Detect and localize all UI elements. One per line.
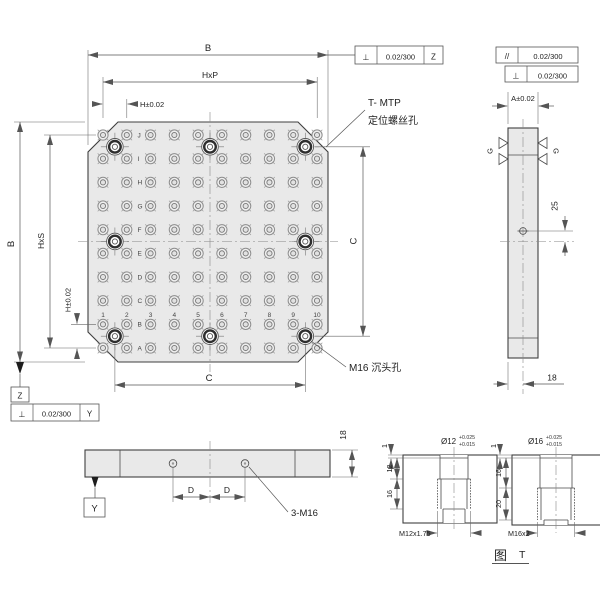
dim-hxs-label: HxS	[36, 233, 46, 249]
row-label: F	[138, 227, 142, 234]
threaded-hole	[240, 130, 251, 141]
dim-18-side-label: 18	[547, 373, 557, 383]
threaded-hole	[98, 224, 109, 235]
dim-B-left: B Z	[6, 122, 85, 402]
threaded-hole	[169, 343, 180, 354]
finish-g-right-label: G	[552, 148, 561, 154]
front-view: D D 3-M16 18 Y	[84, 430, 358, 519]
threaded-hole	[217, 177, 228, 188]
threaded-hole	[288, 272, 299, 283]
fcf-perp-tolerance: 0.02/300	[538, 72, 567, 81]
note-tmtp-line1: T- MTP	[368, 98, 401, 109]
m12-tol-upper: +0.025	[459, 435, 475, 441]
threaded-hole	[121, 248, 132, 259]
threaded-hole	[288, 153, 299, 164]
datum-z-label: Z	[18, 392, 23, 401]
dim-h-left-label: H±0.02	[64, 288, 73, 312]
threaded-hole	[312, 272, 323, 283]
threaded-hole	[121, 177, 132, 188]
fcf-bottom-left: ⊥ 0.02/300 Y	[11, 404, 99, 421]
threaded-hole	[312, 295, 323, 306]
threaded-hole	[264, 130, 275, 141]
row-label: I	[138, 156, 140, 163]
threaded-hole	[312, 130, 323, 141]
row-label: C	[138, 298, 143, 305]
threaded-hole	[145, 343, 156, 354]
dim-b-left-label: B	[6, 241, 17, 247]
threaded-hole	[121, 130, 132, 141]
threaded-hole	[217, 319, 228, 330]
m16-thread-label: M16x2	[508, 529, 530, 538]
row-label: D	[138, 274, 143, 281]
dim-25-label: 25	[550, 201, 560, 211]
datum-z-triangle	[16, 362, 24, 374]
threaded-hole	[264, 319, 275, 330]
threaded-hole	[288, 177, 299, 188]
m16-tol-lower: +0.015	[546, 442, 562, 448]
caption-ref-label: T	[519, 549, 526, 561]
threaded-hole	[288, 295, 299, 306]
threaded-hole	[169, 295, 180, 306]
fcf-bottom-tolerance: 0.02/300	[42, 410, 71, 419]
threaded-hole	[145, 319, 156, 330]
note-m16: M16 沉头孔	[311, 341, 401, 374]
col-label: 1	[101, 312, 105, 319]
threaded-hole	[193, 295, 204, 306]
threaded-hole	[98, 177, 109, 188]
threaded-hole	[169, 177, 180, 188]
dim-c-right-label: C	[349, 237, 360, 244]
threaded-hole	[240, 343, 251, 354]
m12-tol-lower: +0.015	[459, 442, 475, 448]
threaded-hole	[145, 272, 156, 283]
row-label: E	[138, 251, 143, 258]
m16-dim-bore: 16	[494, 469, 503, 477]
dim-d-left-label: D	[188, 485, 194, 495]
col-label: 6	[220, 312, 224, 319]
threaded-hole	[145, 201, 156, 212]
threaded-hole	[264, 272, 275, 283]
threaded-hole	[145, 248, 156, 259]
threaded-hole	[288, 201, 299, 212]
m16-dim-lip: 1	[489, 444, 498, 448]
m12-dim-bore: 12	[385, 465, 394, 473]
col-label: 10	[313, 312, 321, 319]
row-label: A	[138, 345, 143, 352]
note-m16-label: M16 沉头孔	[349, 361, 401, 374]
threaded-hole	[169, 130, 180, 141]
col-label: 8	[268, 312, 272, 319]
threaded-hole	[240, 272, 251, 283]
threaded-hole	[288, 343, 299, 354]
threaded-hole	[145, 224, 156, 235]
m12-dia-label: Ø12	[441, 437, 457, 446]
threaded-hole	[193, 224, 204, 235]
fcf-parallel-tolerance: 0.02/300	[533, 52, 562, 61]
dim-h-top-label: H±0.02	[140, 100, 164, 109]
threaded-hole	[288, 319, 299, 330]
threaded-hole	[193, 153, 204, 164]
threaded-hole	[98, 153, 109, 164]
threaded-hole	[312, 248, 323, 259]
threaded-hole	[98, 295, 109, 306]
threaded-hole	[240, 153, 251, 164]
dim-m12-dia: Ø12 +0.025 +0.015	[441, 435, 475, 448]
threaded-hole	[288, 248, 299, 259]
front-bar	[85, 450, 330, 477]
m16-tol-upper: +0.025	[546, 435, 562, 441]
threaded-hole	[98, 319, 109, 330]
threaded-hole	[98, 130, 109, 141]
note-tmtp: T- MTP 定位螺丝孔	[326, 98, 418, 147]
row-label: G	[138, 203, 143, 210]
col-label: 3	[149, 312, 153, 319]
fcf-top-datum: Z	[431, 53, 436, 62]
threaded-hole	[169, 153, 180, 164]
threaded-hole	[217, 224, 228, 235]
threaded-hole	[217, 153, 228, 164]
col-label: 4	[173, 312, 177, 319]
threaded-hole	[264, 224, 275, 235]
datum-y-label: Y	[91, 504, 98, 515]
threaded-hole	[264, 248, 275, 259]
threaded-hole	[217, 343, 228, 354]
perpendicularity-icon: ⊥	[19, 410, 26, 419]
m16-dim-thread: 20	[494, 500, 503, 508]
dim-a-label: A±0.02	[511, 94, 535, 103]
threaded-hole	[217, 130, 228, 141]
threaded-hole	[240, 201, 251, 212]
m12-dim-lip: 1	[380, 444, 389, 448]
threaded-hole	[98, 343, 109, 354]
finish-g-left-label: G	[486, 148, 495, 154]
threaded-hole	[240, 177, 251, 188]
threaded-hole	[121, 272, 132, 283]
threaded-hole	[145, 153, 156, 164]
threaded-hole	[312, 201, 323, 212]
datum-y: Y	[84, 477, 105, 517]
threaded-hole	[312, 153, 323, 164]
dim-c-bottom-label: C	[206, 373, 213, 384]
threaded-hole	[121, 343, 132, 354]
threaded-hole	[98, 248, 109, 259]
dim-18-front: 18	[332, 430, 358, 477]
dim-d-right-label: D	[224, 485, 230, 495]
caption-fig-label: 图	[494, 548, 507, 563]
threaded-hole	[288, 224, 299, 235]
threaded-hole	[145, 177, 156, 188]
threaded-hole	[240, 295, 251, 306]
threaded-hole	[193, 177, 204, 188]
engineering-drawing: JIHGFEDCBA12345678910 B HxP H±0.02 B	[0, 0, 600, 600]
threaded-hole	[264, 343, 275, 354]
threaded-hole	[121, 224, 132, 235]
threaded-hole	[98, 272, 109, 283]
threaded-hole	[121, 295, 132, 306]
fcf-parallelism: // 0.02/300	[496, 47, 578, 63]
col-label: 5	[196, 312, 200, 319]
dim-m12-depths: 1 12 16	[380, 444, 440, 509]
threaded-hole	[240, 319, 251, 330]
parallelism-icon: //	[505, 52, 510, 61]
threaded-hole	[217, 201, 228, 212]
threaded-hole	[264, 201, 275, 212]
dim-HxP: HxP	[103, 70, 317, 118]
threaded-hole	[169, 224, 180, 235]
row-label: B	[138, 322, 142, 329]
dim-b-top-label: B	[205, 43, 211, 54]
threaded-hole	[240, 224, 251, 235]
detail-m16: Ø16 +0.025 +0.015 1 16 20 M16x2	[489, 435, 600, 538]
note-tmtp-line2: 定位螺丝孔	[368, 114, 418, 127]
threaded-hole	[288, 130, 299, 141]
threaded-hole	[121, 153, 132, 164]
threaded-hole	[312, 224, 323, 235]
note-3m16-label: 3-M16	[291, 508, 318, 519]
dim-m12-thread: M12x1.75	[399, 511, 479, 538]
datum-y-triangle	[92, 477, 99, 488]
row-label: J	[138, 132, 141, 139]
threaded-hole	[169, 201, 180, 212]
perpendicularity-icon: ⊥	[513, 72, 520, 81]
threaded-hole	[193, 319, 204, 330]
main-plate-view: JIHGFEDCBA12345678910 B HxP H±0.02 B	[6, 43, 443, 421]
row-label: H	[138, 180, 143, 187]
threaded-hole	[121, 319, 132, 330]
threaded-hole	[193, 343, 204, 354]
detail-caption: 图 T	[492, 548, 529, 564]
threaded-hole	[264, 177, 275, 188]
threaded-hole	[145, 295, 156, 306]
m12-dim-thread: 16	[385, 490, 394, 498]
threaded-hole	[217, 248, 228, 259]
col-label: 2	[125, 312, 129, 319]
perpendicularity-icon: ⊥	[363, 53, 370, 62]
threaded-hole	[193, 130, 204, 141]
threaded-hole	[145, 130, 156, 141]
dim-m16-dia: Ø16 +0.025 +0.015	[528, 435, 562, 448]
threaded-hole	[193, 272, 204, 283]
threaded-hole	[169, 272, 180, 283]
fcf-bottom-datum: Y	[87, 410, 93, 419]
threaded-hole	[193, 248, 204, 259]
threaded-hole	[217, 295, 228, 306]
m12-thread-label: M12x1.75	[399, 529, 431, 538]
threaded-hole	[98, 201, 109, 212]
m16-dia-label: Ø16	[528, 437, 544, 446]
threaded-hole	[169, 319, 180, 330]
detail-m12: Ø12 +0.025 +0.015 1 12 16 M12x1.75	[380, 435, 497, 538]
fcf-top: ⊥ 0.02/300 Z	[355, 46, 443, 64]
threaded-hole	[264, 295, 275, 306]
col-label: 7	[244, 312, 248, 319]
fcf-top-tolerance: 0.02/300	[386, 53, 415, 62]
dim-18-front-label: 18	[338, 430, 348, 440]
threaded-hole	[193, 201, 204, 212]
threaded-hole	[312, 177, 323, 188]
col-label: 9	[291, 312, 295, 319]
threaded-hole	[169, 248, 180, 259]
threaded-hole	[240, 248, 251, 259]
threaded-hole	[217, 272, 228, 283]
threaded-hole	[312, 319, 323, 330]
dim-hxp-label: HxP	[202, 70, 218, 80]
fcf-perpendicularity: ⊥ 0.02/300	[505, 66, 578, 82]
threaded-hole	[121, 201, 132, 212]
side-view: // 0.02/300 ⊥ 0.02/300 A±0.02 G G 25	[486, 47, 579, 394]
dim-18-side: 18	[494, 362, 565, 390]
threaded-hole	[264, 153, 275, 164]
